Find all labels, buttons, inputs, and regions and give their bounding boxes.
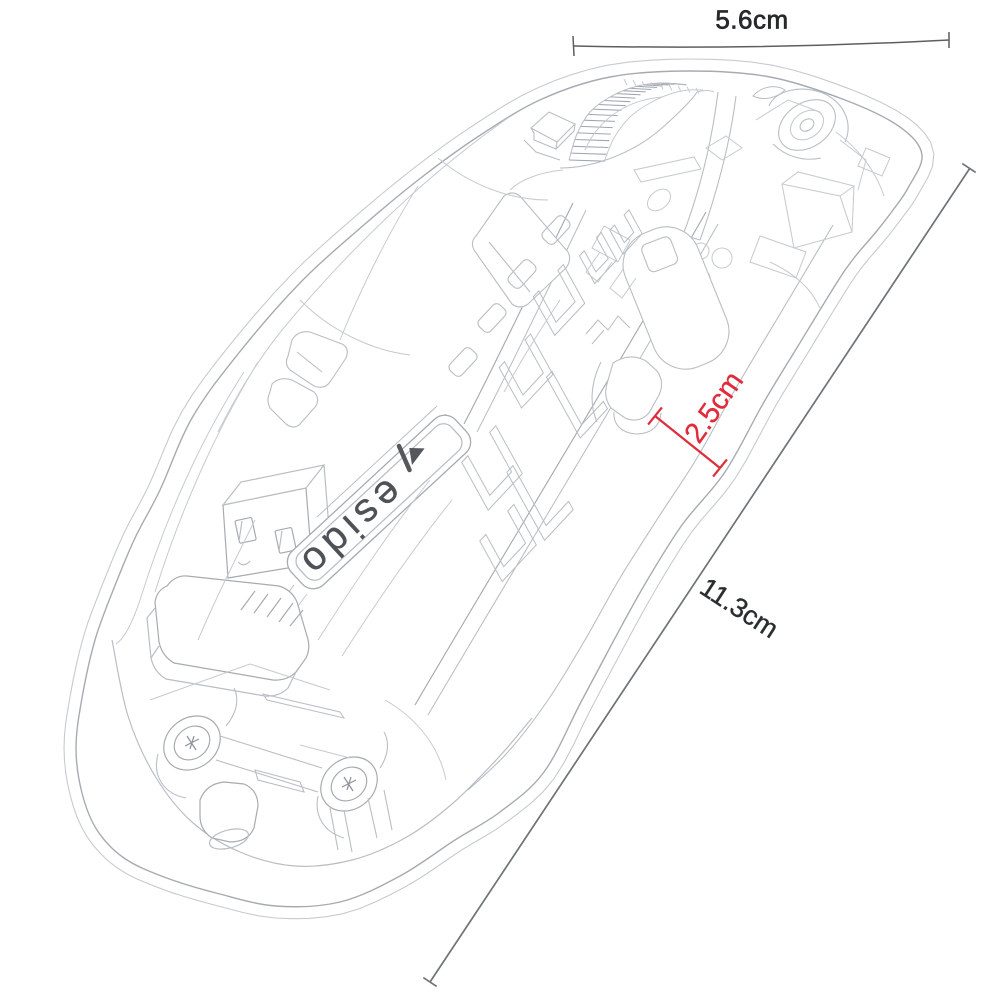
svg-text:5.6cm: 5.6cm bbox=[715, 5, 788, 35]
